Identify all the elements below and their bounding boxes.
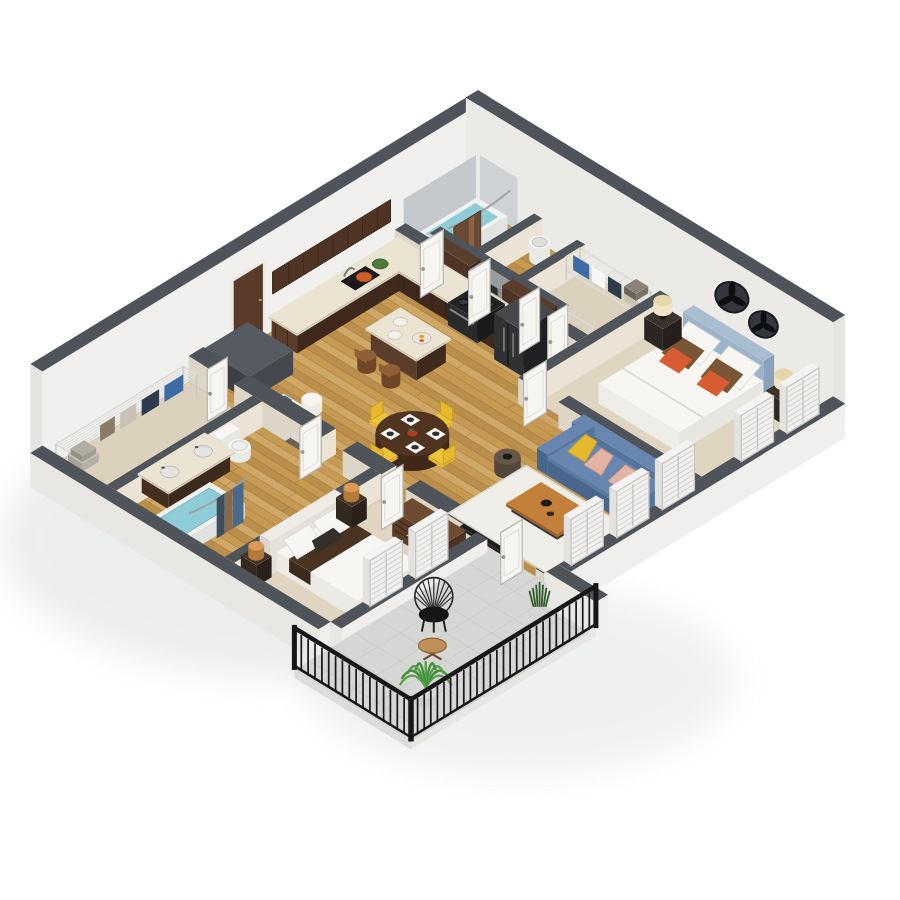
floor-plan-svg	[0, 0, 900, 900]
hall-door-closet1-left	[520, 287, 540, 353]
bedroom2-lamp-1	[343, 483, 359, 503]
dining-plate-2	[432, 432, 439, 436]
vanity2-faucet-2	[161, 466, 165, 468]
bedroom2-lamp-2	[248, 541, 264, 561]
apartment-3d-floor-plan	[0, 0, 900, 900]
dining-plate-4	[411, 445, 418, 449]
nook-sink-basin	[532, 238, 547, 247]
dining-plate-1	[407, 418, 414, 422]
range-burner-3	[458, 299, 468, 305]
island-fruit-2	[419, 339, 424, 342]
master-lamp-left-shade	[653, 295, 672, 317]
entry-door-knob	[259, 299, 262, 301]
vanity2-faucet-1	[195, 446, 199, 448]
bathroom2-curtain-tan	[225, 489, 233, 534]
kitchen-fruit-bowl-counter	[356, 272, 372, 282]
bathroom2-curtain-blue	[233, 482, 244, 529]
island-plate-1	[393, 317, 407, 326]
island-fruit-bowl	[412, 332, 431, 344]
bathroom2-curtain-navy	[217, 494, 225, 539]
dining-centerpiece-green	[408, 428, 413, 431]
coffee-table-decor-1	[541, 500, 552, 507]
side-table-decor	[503, 454, 512, 460]
toilet-seat-ring	[232, 441, 248, 451]
dining-plate-3	[387, 432, 394, 436]
island-plate-2	[388, 331, 402, 340]
island-fruit-1	[419, 335, 424, 338]
coffee-table-decor-2	[547, 511, 555, 516]
kitchen-veggie-bowl	[372, 259, 388, 269]
